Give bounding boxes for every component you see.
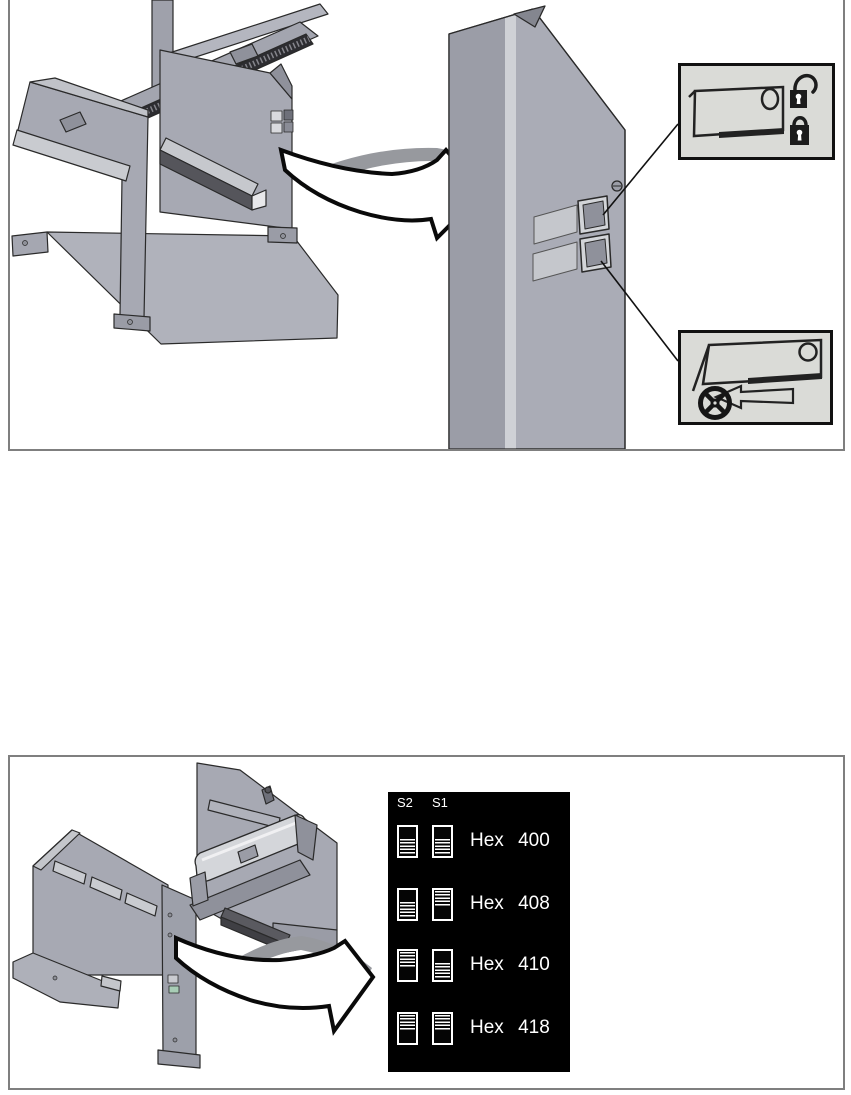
hex-address-label: Hex 400: [470, 830, 550, 852]
figure-door-lock-labels: [8, 0, 845, 451]
dip-switch-s2: [397, 949, 418, 982]
dip-switch-s1: [432, 949, 453, 982]
door-panel-icon: [689, 87, 783, 136]
handwheel-icon: [701, 389, 730, 418]
dip-switch-s1: [432, 825, 453, 858]
hex-address-label: Hex 410: [470, 954, 550, 976]
dip-switch-s2: [397, 888, 418, 921]
connector-detail: [169, 986, 179, 993]
dip-switch-s1: [432, 1012, 453, 1045]
column-header-s1: S1: [432, 795, 448, 810]
wall-label-small-1: [271, 111, 282, 121]
hex-address-label: Hex 418: [470, 1017, 550, 1039]
machine-illustration: [13, 763, 337, 1068]
wall-label-small-2: [271, 123, 282, 133]
detail-box-door-handwheel: [678, 330, 833, 425]
column-header-s2: S2: [397, 795, 413, 810]
dip-switch-panel: S2 S1 Hex 400 Hex 408 Hex 410 Hex 418: [388, 792, 570, 1072]
hex-address-label: Hex 408: [470, 893, 550, 915]
padlock-locked-icon: [790, 118, 809, 145]
figure-dip-switch-panel: S2 S1 Hex 400 Hex 408 Hex 410 Hex 418: [8, 755, 845, 1090]
padlock-open-icon: [790, 76, 816, 108]
dip-switch-s1: [432, 888, 453, 921]
machine-base-plate: [47, 232, 338, 344]
machine-right-wall: [160, 50, 292, 229]
dip-switch-s2: [397, 1012, 418, 1045]
detail-box-door-locks: [678, 63, 835, 160]
dip-switch-s2: [397, 825, 418, 858]
enlarged-corner-post: [449, 6, 625, 449]
